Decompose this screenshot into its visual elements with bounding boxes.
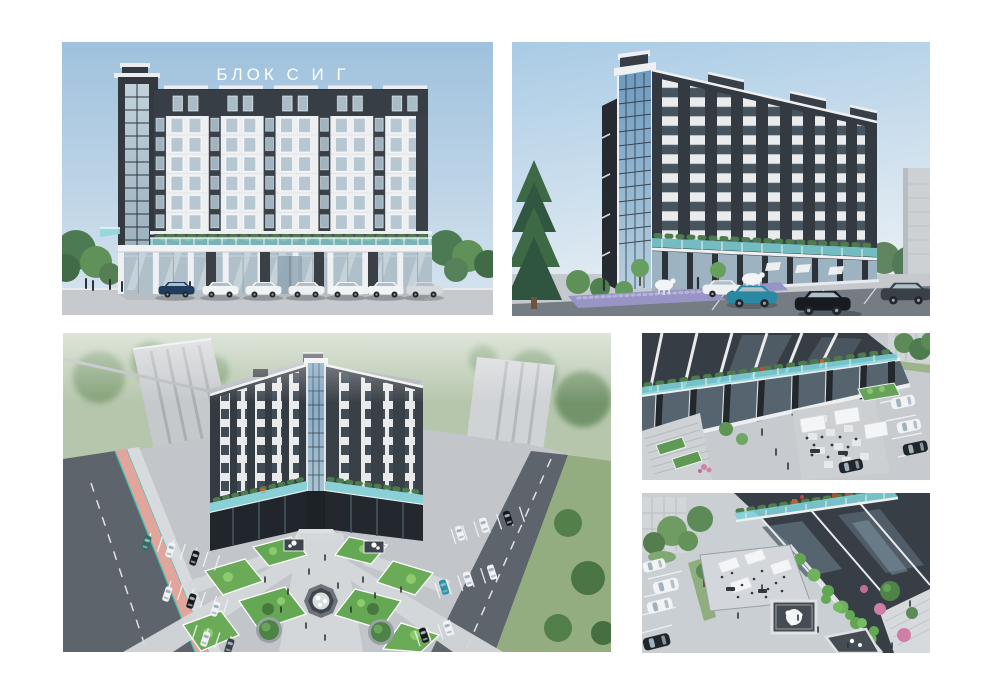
render-terrace-closeup: [642, 333, 930, 480]
neighbor-building: [903, 168, 930, 284]
fountain-octagon: [304, 584, 338, 618]
render-aerial-view: [63, 333, 611, 652]
presentation-sheet: БЛОК С И Г: [0, 0, 990, 700]
building-front: [100, 63, 432, 300]
render-front-elevation: БЛОК С И Г: [62, 42, 493, 315]
render-plaza-closeup: [642, 493, 930, 653]
block-title: БЛОК С И Г: [216, 65, 349, 84]
fountain-square: [772, 601, 816, 633]
render-corner-perspective: [512, 42, 930, 316]
haze: [63, 333, 611, 403]
terrace: [150, 231, 432, 247]
